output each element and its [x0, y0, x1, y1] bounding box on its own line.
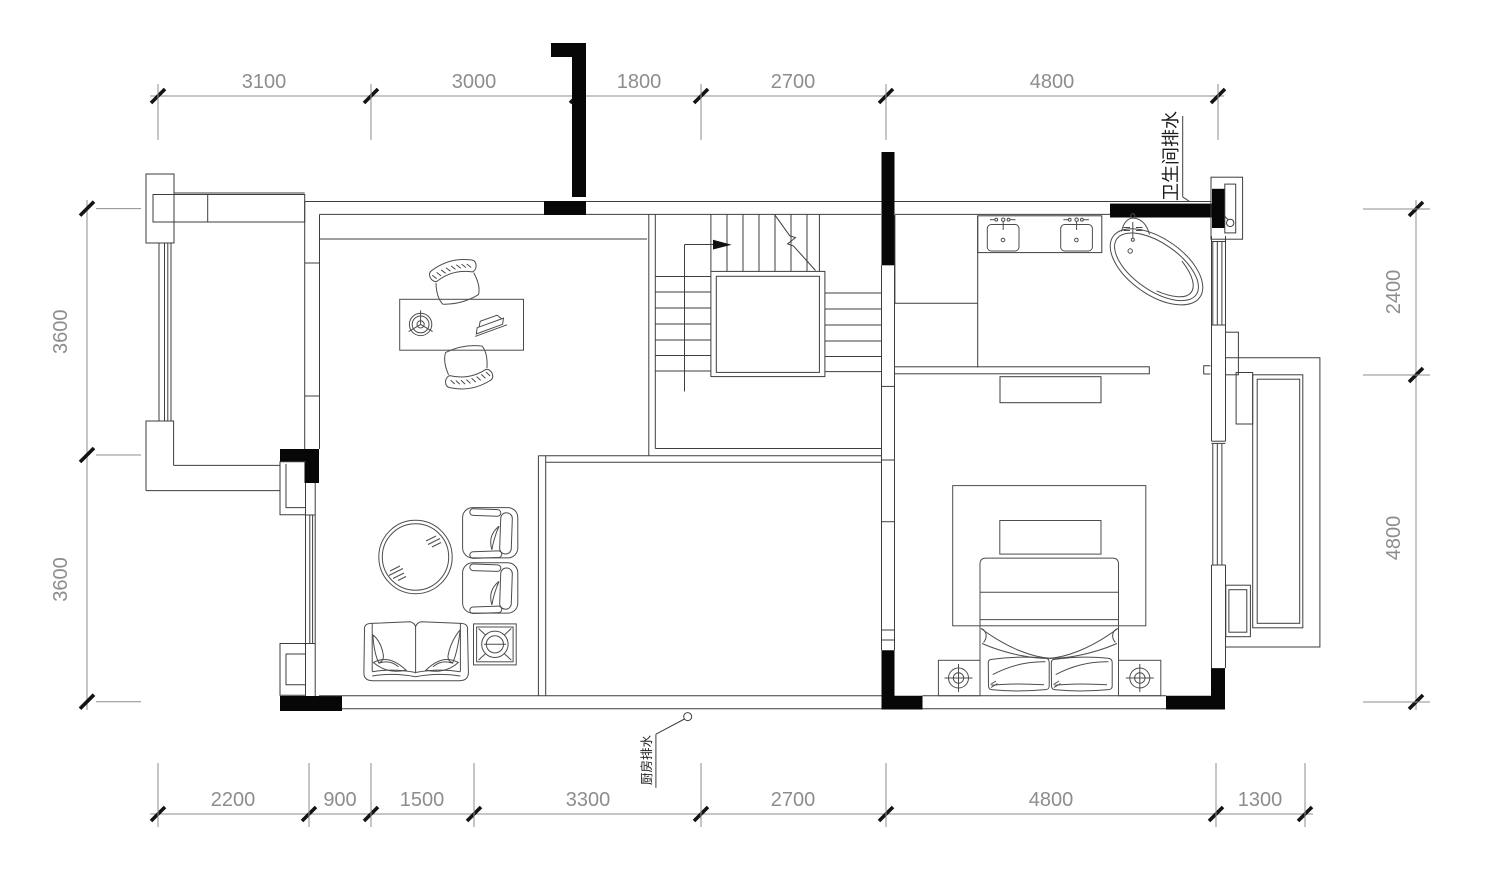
- svg-text:1500: 1500: [400, 789, 445, 811]
- svg-text:2200: 2200: [211, 789, 256, 811]
- svg-text:2700: 2700: [771, 789, 816, 811]
- svg-text:2400: 2400: [1383, 270, 1405, 315]
- svg-text:2700: 2700: [771, 71, 816, 93]
- svg-text:3300: 3300: [566, 789, 611, 811]
- svg-text:1300: 1300: [1238, 789, 1283, 811]
- svg-text:3000: 3000: [452, 71, 497, 93]
- svg-text:3600: 3600: [50, 310, 72, 355]
- svg-text:3600: 3600: [50, 557, 72, 602]
- svg-text:4800: 4800: [1029, 789, 1074, 811]
- svg-text:4800: 4800: [1383, 516, 1405, 561]
- svg-text:厨房排水: 厨房排水: [639, 735, 654, 786]
- svg-text:4800: 4800: [1030, 71, 1075, 93]
- svg-text:1800: 1800: [617, 71, 662, 93]
- svg-text:3100: 3100: [242, 71, 287, 93]
- svg-text:卫生间排水: 卫生间排水: [1161, 111, 1181, 201]
- svg-text:900: 900: [323, 789, 356, 811]
